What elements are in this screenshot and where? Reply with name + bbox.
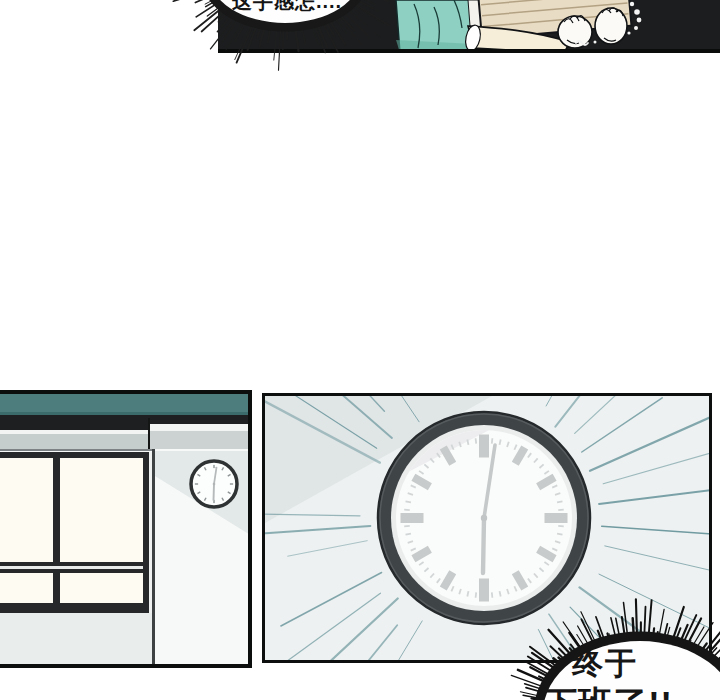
comic-page: 这手感怎.... — [0, 0, 720, 700]
tick — [401, 513, 424, 523]
ceiling-teal-band — [0, 394, 252, 415]
window-mid-rail-highlight — [0, 566, 143, 569]
window-pane-upper-left — [0, 458, 53, 562]
rail-seam — [148, 418, 150, 449]
scream-bubble-top-text: 这手感怎.... — [231, 0, 342, 12]
rail-highlight-right — [150, 424, 252, 431]
wall-below-window — [0, 613, 152, 665]
large-clock-center — [481, 515, 487, 521]
scream-bubble-top: 这手感怎.... — [150, 0, 430, 80]
panel-border-top — [0, 390, 252, 394]
spike — [173, 0, 214, 1]
panel-border-bottom — [0, 664, 252, 668]
tick — [545, 513, 568, 523]
panel-border-top — [262, 393, 712, 396]
small-clock-center — [213, 483, 216, 486]
office-window-illustration — [0, 390, 252, 668]
tick — [479, 435, 489, 458]
large-clock-hour-hand — [483, 518, 484, 573]
window-pane-upper-right — [60, 458, 143, 562]
rail-bottom-edge — [0, 449, 155, 451]
tick — [195, 483, 198, 484]
panel-border-left — [262, 393, 265, 663]
panel-border-right — [248, 390, 252, 668]
scream-bubble-bottom-line2: 下班了!! — [542, 684, 673, 700]
tick — [213, 465, 214, 468]
curtain-rail-right — [150, 431, 252, 449]
small-clock-hour-hand — [214, 484, 215, 500]
scream-bubble-bottom: 终于 下班了!! — [495, 572, 720, 700]
window-pane-lower-right — [60, 573, 143, 603]
window-pane-lower-left — [0, 573, 53, 603]
tick — [230, 483, 233, 484]
wall-corner-line — [152, 449, 155, 665]
panel-office-window — [0, 390, 252, 668]
tick — [479, 579, 489, 602]
scream-bubble-bottom-line1: 终于 — [571, 646, 638, 681]
ceiling-teal-shadow — [0, 412, 252, 415]
